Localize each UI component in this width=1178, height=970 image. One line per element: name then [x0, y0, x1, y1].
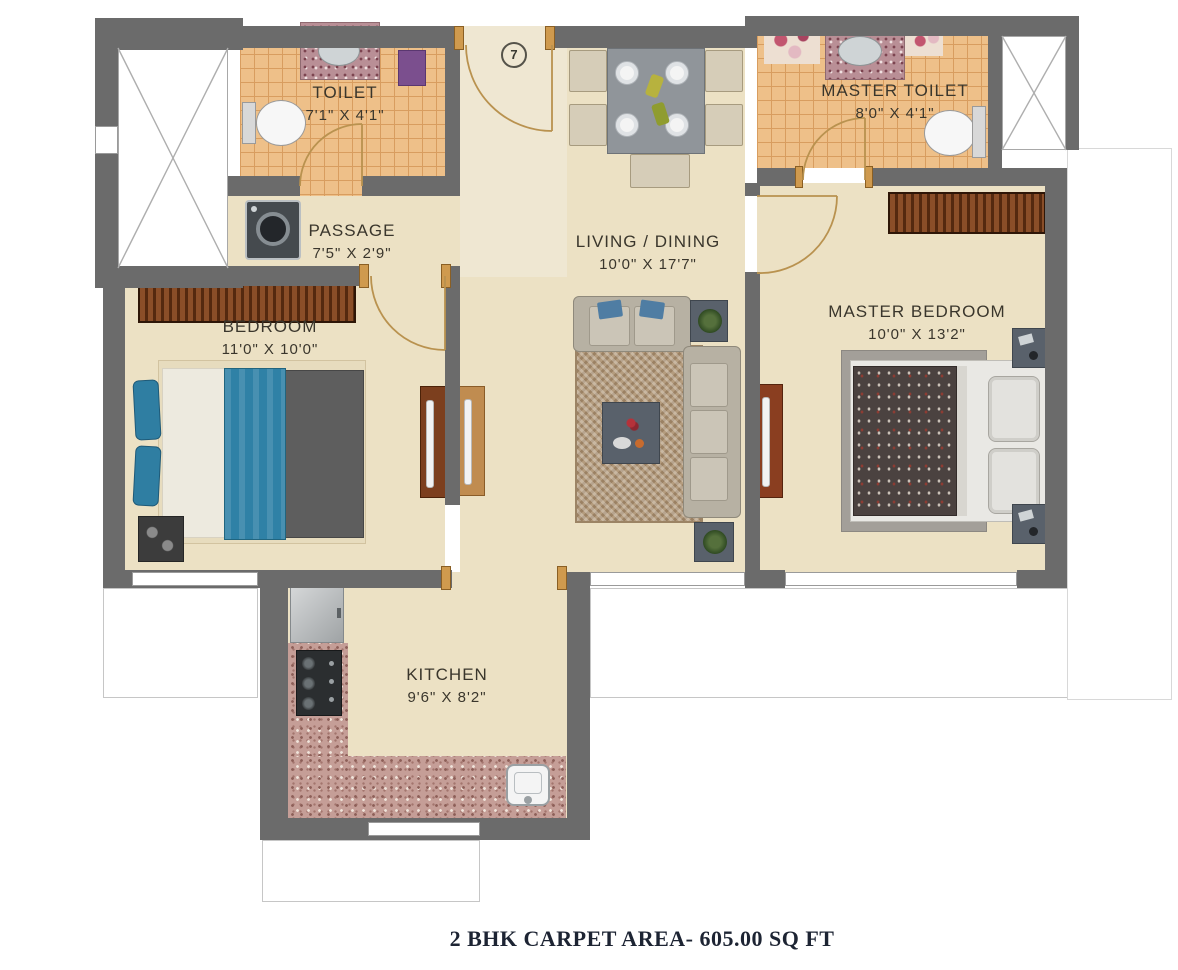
- plate: [665, 61, 689, 85]
- window: [785, 572, 1017, 586]
- room-dims: 8'0" X 4'1": [821, 106, 968, 121]
- room-label-bedroom: BEDROOM 11'0" X 10'0": [222, 318, 319, 357]
- burner: [302, 697, 315, 710]
- door-jamb: [441, 264, 451, 288]
- wall-segment: [545, 26, 757, 48]
- window: [95, 126, 118, 154]
- door-jamb: [545, 26, 555, 50]
- dining-chair: [569, 104, 607, 146]
- tv-unit-bedroom: [420, 386, 447, 498]
- door-jamb: [865, 166, 873, 188]
- sofa-cushion: [690, 363, 728, 407]
- stove-knob: [329, 661, 334, 666]
- table-bowl: [635, 439, 644, 448]
- nightstand-decor: [1029, 527, 1038, 536]
- room-name: MASTER BEDROOM: [828, 303, 1005, 320]
- wall-segment: [260, 588, 288, 818]
- tv-unit-master: [757, 384, 783, 498]
- tv-unit-living: [459, 386, 485, 496]
- unit-number-badge: 7: [501, 42, 527, 68]
- master-wc-tank: [972, 106, 986, 158]
- plate: [615, 113, 639, 137]
- wall-segment: [228, 176, 300, 196]
- duct-shaft-left: [118, 48, 228, 268]
- wall-segment: [445, 48, 460, 178]
- washing-machine: [245, 200, 301, 260]
- dining-table: [607, 48, 705, 154]
- plant-stand: [694, 522, 734, 562]
- room-name: PASSAGE: [309, 222, 396, 239]
- wall-segment: [865, 168, 993, 186]
- door-jamb: [557, 566, 567, 590]
- stove-knob: [329, 679, 334, 684]
- window: [590, 572, 745, 586]
- room-name: KITCHEN: [406, 666, 488, 683]
- sofa-pillow: [597, 299, 623, 319]
- burner: [302, 657, 315, 670]
- wall-segment: [240, 26, 462, 48]
- wc-bowl: [256, 100, 306, 146]
- dining-chair: [705, 104, 743, 146]
- fridge: [290, 581, 344, 643]
- wall-segment: [745, 570, 785, 588]
- bed-sheet: [162, 368, 230, 538]
- wall-segment: [362, 176, 460, 196]
- bed-blanket-teal: [224, 368, 286, 540]
- bath-accessory: [398, 50, 426, 86]
- wall-segment: [1045, 183, 1067, 573]
- dining-bench: [630, 154, 690, 188]
- bedside-unit: [138, 516, 184, 562]
- room-dims: 7'5" X 2'9": [309, 246, 396, 261]
- door-jamb: [454, 26, 464, 50]
- room-name: MASTER TOILET: [821, 82, 968, 99]
- room-name: TOILET: [305, 84, 384, 101]
- coffee-table: [602, 402, 660, 464]
- nightstand-decor: [1018, 333, 1034, 345]
- room-label-passage: PASSAGE 7'5" X 2'9": [309, 222, 396, 261]
- nightstand-decor: [1018, 509, 1034, 521]
- plate: [665, 113, 689, 137]
- plant-icon: [698, 309, 722, 333]
- sofa-pillow: [639, 299, 665, 319]
- tv-screen: [426, 400, 434, 488]
- room-label-master-bedroom: MASTER BEDROOM 10'0" X 13'2": [828, 303, 1005, 342]
- door-jamb: [359, 264, 369, 288]
- burner: [302, 677, 315, 690]
- sofa-cushion: [690, 457, 728, 501]
- master-washbasin: [838, 36, 882, 66]
- plate: [615, 61, 639, 85]
- room-dims: 9'6" X 8'2": [406, 690, 488, 705]
- table-tray: [613, 437, 631, 449]
- wc-tank: [242, 102, 256, 144]
- bed-pillow-teal: [132, 445, 161, 506]
- balcony-projection-kitchen: [262, 840, 480, 902]
- room-dims: 10'0" X 13'2": [828, 327, 1005, 342]
- master-bed-throw: [853, 366, 957, 516]
- terrace-strip-right: [1067, 148, 1172, 700]
- dining-chair: [705, 50, 743, 92]
- room-dims: 7'1" X 4'1": [305, 108, 384, 123]
- bed-fold: [957, 366, 967, 516]
- duct-shaft-right: [1002, 36, 1066, 150]
- wardrobe-master: [888, 192, 1046, 234]
- window: [368, 822, 480, 836]
- nightstand: [1012, 504, 1046, 544]
- bed-pillow: [988, 376, 1040, 442]
- room-name: LIVING / DINING: [576, 233, 720, 250]
- tv-screen: [464, 399, 472, 485]
- caption: 2 BHK CARPET AREA- 605.00 SQ FT: [450, 926, 835, 952]
- wall-segment: [103, 266, 368, 286]
- dining-chair: [569, 50, 607, 92]
- bed-blanket-gray: [280, 370, 364, 538]
- stove-knob: [329, 697, 334, 702]
- table-decor-red: [623, 415, 639, 431]
- room-dims: 11'0" X 10'0": [222, 342, 319, 357]
- fridge-handle: [337, 608, 341, 618]
- wall-segment: [95, 50, 118, 126]
- nightstand-decor: [1029, 351, 1038, 360]
- wall-segment: [445, 272, 460, 505]
- nightstand: [1012, 328, 1046, 368]
- plant-stand: [690, 300, 728, 342]
- wall-segment: [988, 30, 1002, 168]
- tv-screen: [762, 397, 770, 487]
- stove: [296, 650, 342, 716]
- room-label-kitchen: KITCHEN 9'6" X 8'2": [406, 666, 488, 705]
- window: [132, 572, 258, 586]
- wall-segment: [567, 572, 590, 840]
- sofa-three-seater: [683, 346, 741, 518]
- room-name: BEDROOM: [222, 318, 319, 335]
- room-dims: 10'0" X 17'7": [576, 257, 720, 272]
- sink-basin: [514, 772, 542, 794]
- wall-segment: [103, 286, 125, 570]
- washing-machine-knob: [251, 206, 257, 212]
- room-label-toilet: TOILET 7'1" X 4'1": [305, 84, 384, 123]
- table-centerpiece: [645, 73, 665, 98]
- sofa-cushion: [690, 410, 728, 454]
- sofa-two-seater: [573, 296, 691, 352]
- balcony-projection-right: [590, 588, 1068, 698]
- wall-segment: [745, 16, 998, 36]
- plant-icon: [703, 530, 727, 554]
- wall-segment: [95, 18, 243, 50]
- wall-segment: [95, 154, 118, 268]
- door-jamb: [795, 166, 803, 188]
- floor-plan: TOILET 7'1" X 4'1" MASTER TOILET 8'0" X …: [0, 0, 1178, 970]
- room-label-master-toilet: MASTER TOILET 8'0" X 4'1": [821, 82, 968, 121]
- table-centerpiece: [651, 102, 670, 127]
- kitchen-sink: [506, 764, 550, 806]
- washing-machine-drum: [256, 212, 290, 246]
- wall-segment: [995, 16, 1079, 36]
- balcony-projection-left: [103, 588, 258, 698]
- wall-segment: [1066, 36, 1079, 150]
- sink-drain: [524, 796, 532, 804]
- door-jamb: [441, 566, 451, 590]
- bed-pillow-teal: [132, 379, 161, 440]
- room-label-living-dining: LIVING / DINING 10'0" X 17'7": [576, 233, 720, 272]
- wall-segment: [745, 272, 760, 572]
